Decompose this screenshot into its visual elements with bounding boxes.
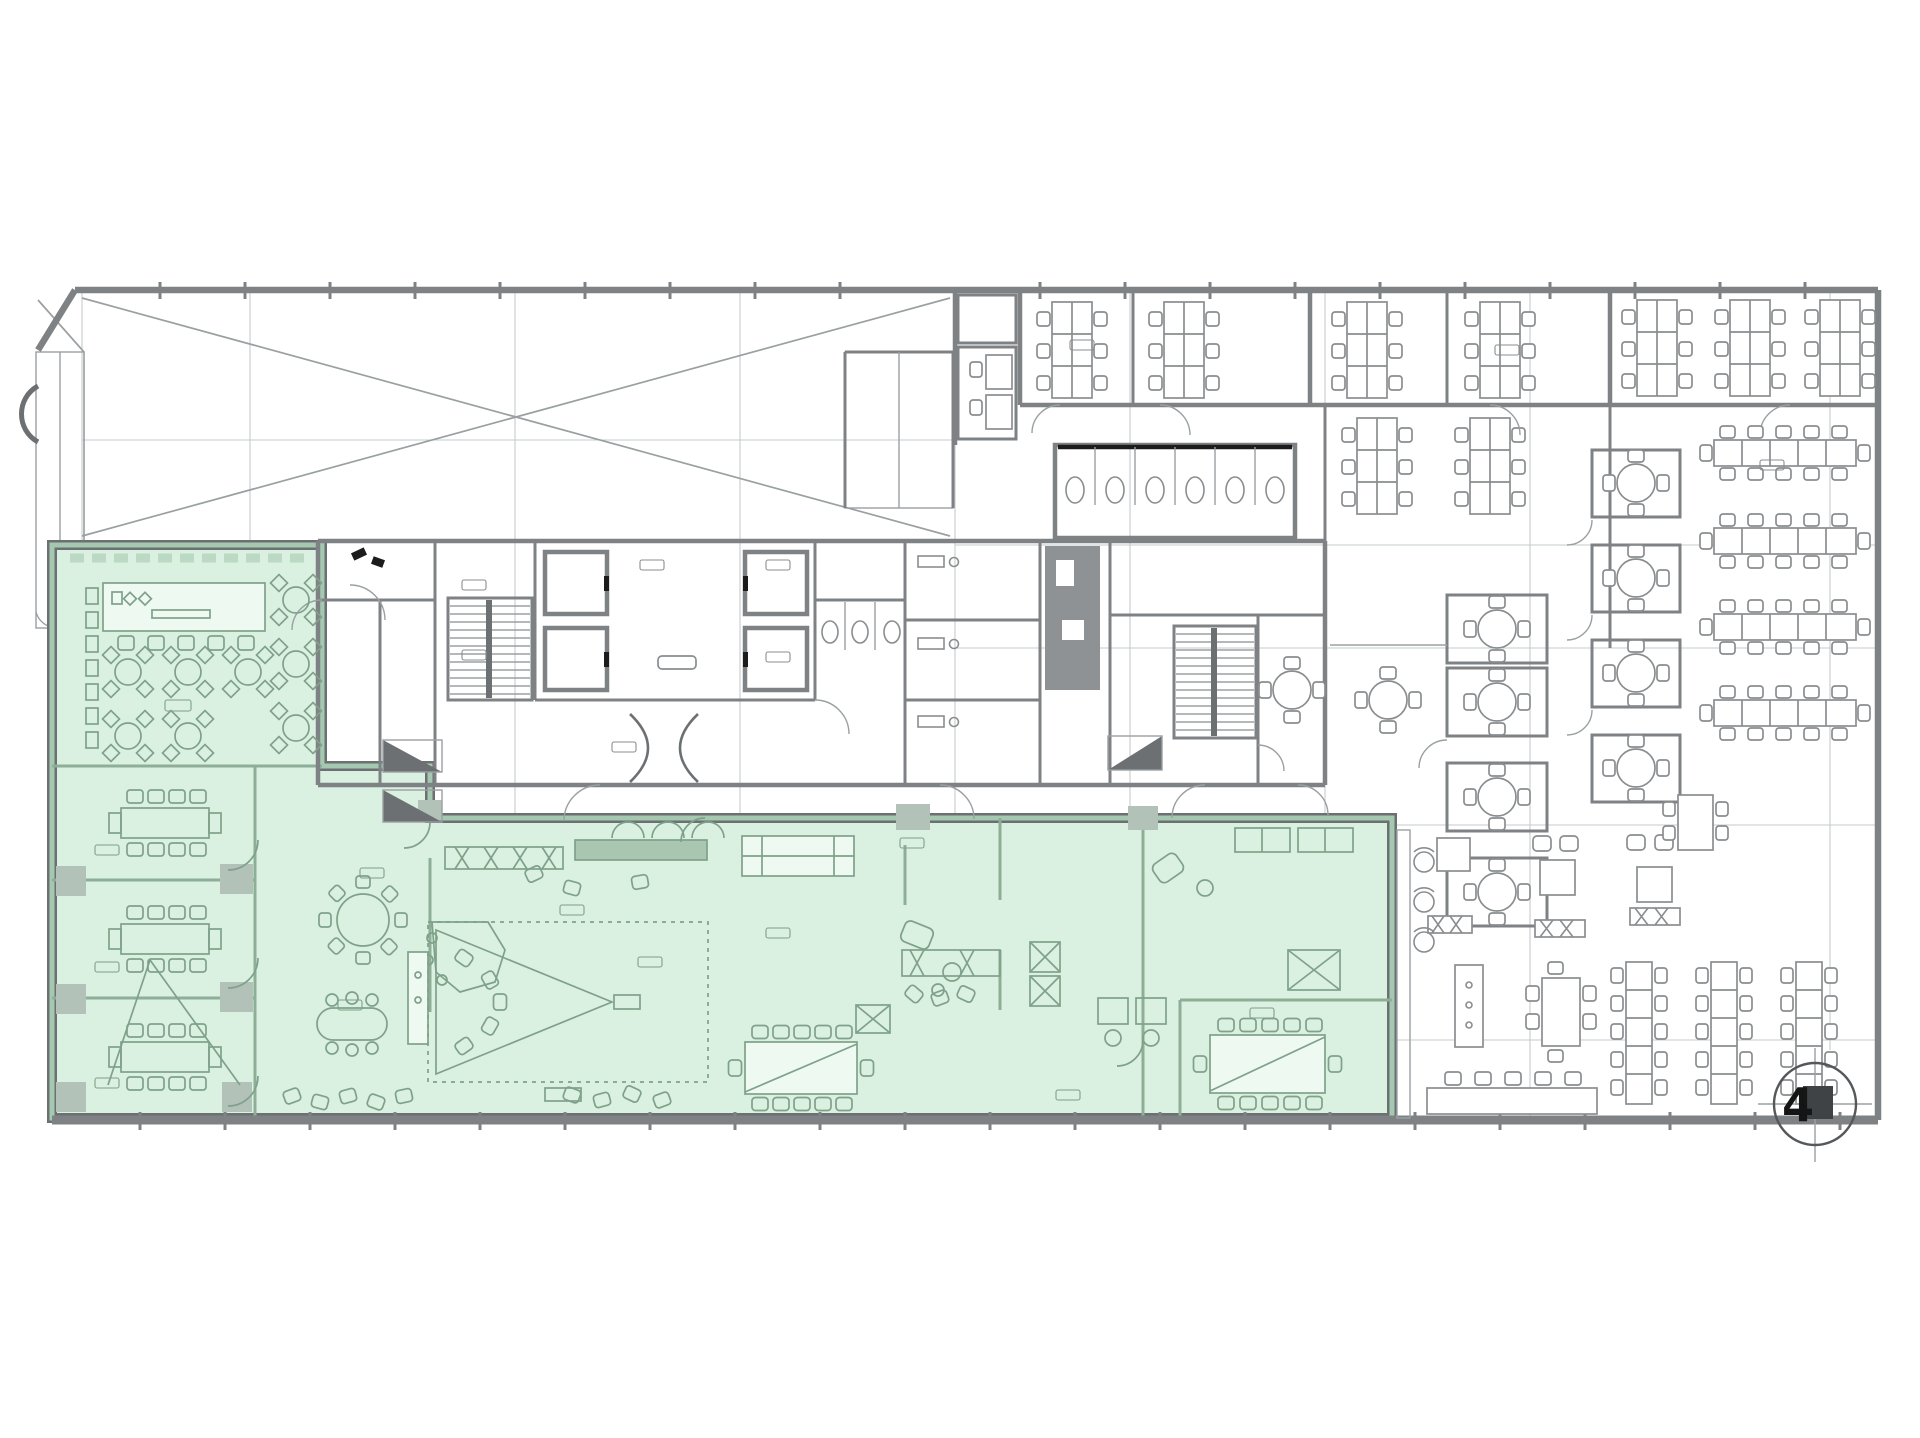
centre-meeting-rooms	[1258, 645, 1447, 771]
grid-bubble: 4	[1758, 1048, 1872, 1162]
elevator-shaft	[745, 552, 807, 614]
floor-plan-drawing: 4	[0, 0, 1920, 1438]
elevator-shaft	[545, 628, 607, 690]
phone-rooms-b	[1567, 450, 1680, 802]
phone-rooms-a	[1447, 595, 1547, 926]
bar-counter	[1427, 1088, 1597, 1114]
restroom-top	[1055, 445, 1295, 538]
atrium-stair-hatch	[845, 352, 953, 508]
radiator-strip	[1397, 830, 1410, 1118]
lounge-chairs	[1414, 848, 1434, 952]
grid-bubble-label: 4	[1782, 1078, 1814, 1132]
stair-a	[448, 598, 532, 700]
understair-triangle	[1108, 736, 1162, 770]
room-labels	[462, 340, 1784, 752]
core-service-rooms	[351, 541, 1100, 785]
double-swing-door	[630, 714, 698, 782]
core-restroom	[815, 541, 905, 785]
lobby-bench	[658, 656, 696, 669]
floor-plan-page: 4	[0, 0, 1920, 1438]
elevator-shaft	[745, 628, 807, 690]
bench-rows	[1700, 426, 1870, 740]
x-bench	[1428, 908, 1680, 937]
building-core	[292, 445, 1328, 822]
elevator-shaft	[545, 552, 607, 614]
